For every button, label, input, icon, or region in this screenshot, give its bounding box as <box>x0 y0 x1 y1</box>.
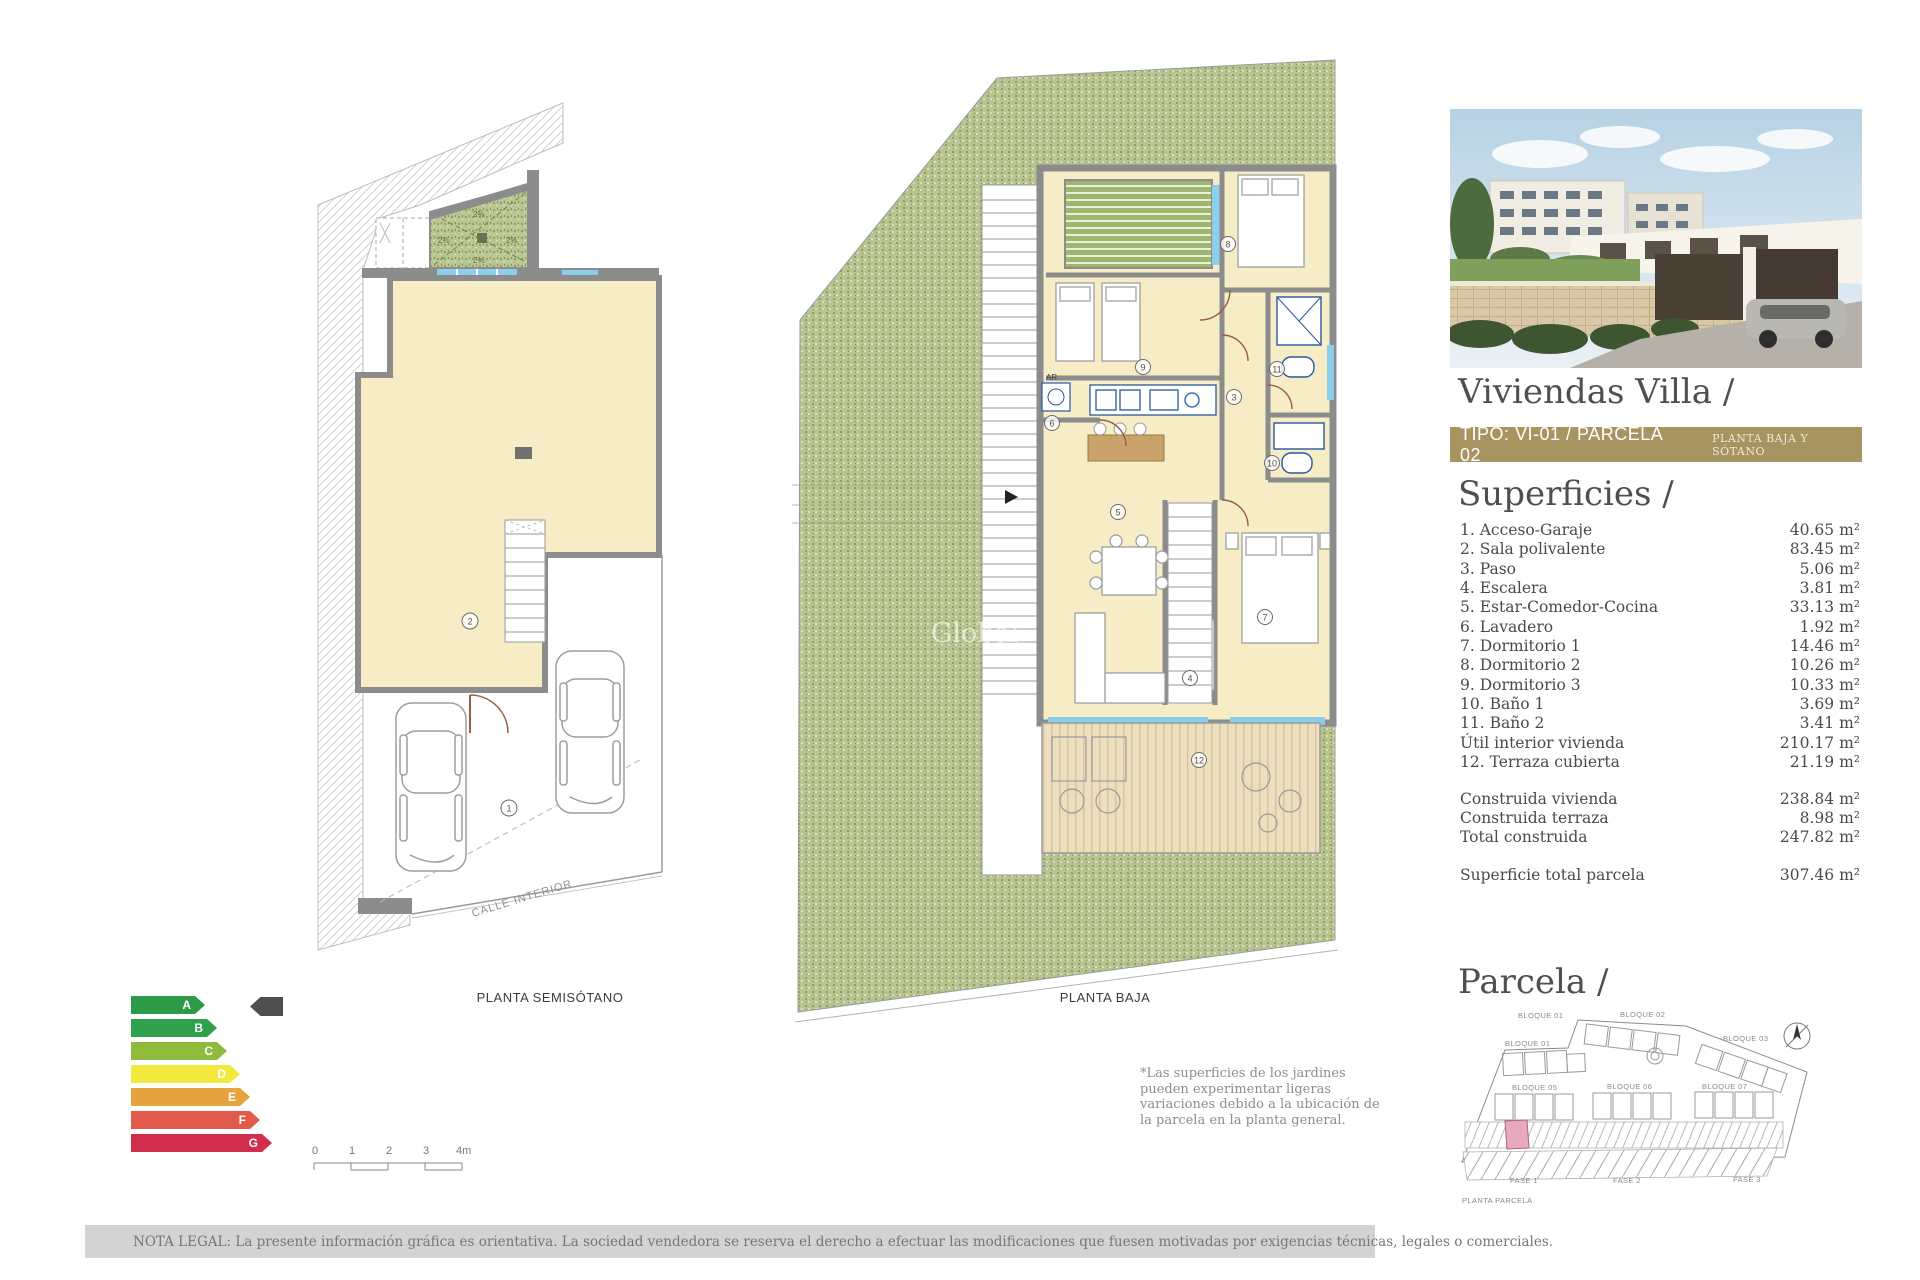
svg-text:4: 4 <box>1187 674 1192 684</box>
type-banner: TIPO: VI-01 / PARCELA 02 PLANTA BAJA Y S… <box>1450 427 1862 462</box>
svg-text:FASE 2: FASE 2 <box>1613 1176 1641 1185</box>
superficies-row: 8. Dormitorio 210.26 m² <box>1460 656 1860 675</box>
light-wells <box>376 218 430 268</box>
superficies-row: 2. Sala polivalente83.45 m² <box>1460 540 1860 559</box>
baja-floorplan: AR 8 9 11 3 6 1 <box>790 45 1360 1030</box>
planter-garden: 2% 2% 2% 2% <box>430 183 538 268</box>
superficies-total-row: Total construida247.82 m² <box>1460 828 1860 847</box>
svg-text:10: 10 <box>1267 459 1277 469</box>
type-banner-type: TIPO: VI-01 / PARCELA 02 <box>1460 424 1684 466</box>
covered-terrace <box>1042 723 1320 853</box>
energy-bar-b: B <box>131 1019 217 1037</box>
svg-text:11: 11 <box>1272 365 1281 375</box>
svg-text:7: 7 <box>1262 613 1267 623</box>
svg-text:BLOQUE 01: BLOQUE 01 <box>1505 1039 1550 1048</box>
superficies-row: 6. Lavadero1.92 m² <box>1460 618 1860 637</box>
page-title: Viviendas Villa / <box>1458 372 1734 412</box>
svg-text:2: 2 <box>467 617 472 627</box>
room-number-1: 1 <box>501 800 517 816</box>
svg-text:12: 12 <box>1194 756 1204 766</box>
watermark: Global <box>900 618 1050 649</box>
interior-stairs <box>505 520 545 642</box>
svg-text:0: 0 <box>312 1145 318 1157</box>
svg-text:3: 3 <box>423 1145 429 1157</box>
exterior-stairs <box>982 185 1042 875</box>
svg-text:9: 9 <box>1140 363 1145 373</box>
superficies-row: Útil interior vivienda210.17 m² <box>1460 734 1860 753</box>
svg-text:FASE 1: FASE 1 <box>1510 1176 1538 1185</box>
kitchen-counter <box>1090 385 1216 415</box>
legal-note: NOTA LEGAL: La presente información gráf… <box>133 1234 1553 1250</box>
slope-label: 2% <box>438 236 450 245</box>
svg-text:6: 6 <box>1049 419 1054 429</box>
compass-icon <box>1784 1023 1810 1049</box>
energy-bar-a: A <box>131 996 205 1014</box>
type-banner-planta: PLANTA BAJA Y SÓTANO <box>1712 432 1862 458</box>
energy-bar-g: G <box>131 1134 272 1152</box>
window-glazing <box>1212 185 1220 265</box>
legal-bar: NOTA LEGAL: La presente información gráf… <box>85 1225 1375 1258</box>
superficies-row: 12. Terraza cubierta21.19 m² <box>1460 753 1860 772</box>
slope-label: 2% <box>473 210 485 219</box>
semisotano-caption: PLANTA SEMISÓTANO <box>455 990 645 1005</box>
svg-text:1: 1 <box>349 1145 355 1157</box>
svg-text:1: 1 <box>506 804 511 814</box>
svg-text:BLOQUE 01: BLOQUE 01 <box>1518 1011 1563 1020</box>
covered-planter <box>1065 180 1212 268</box>
svg-text:4m: 4m <box>456 1145 471 1157</box>
slope-label: 2% <box>506 236 518 245</box>
parcel-total-row: Superficie total parcela307.46 m² <box>1460 866 1860 885</box>
svg-text:FASE 3: FASE 3 <box>1733 1175 1761 1184</box>
semisotano-floorplan: 2% 2% 2% 2% <box>310 95 680 965</box>
energy-bar-c: C <box>131 1042 227 1060</box>
svg-text:8: 8 <box>1225 240 1230 250</box>
slope-label: 2% <box>473 256 485 265</box>
superficies-total-row: Construida vivienda238.84 m² <box>1460 790 1860 809</box>
scale-bar: 0 1 2 3 4m <box>306 1142 476 1176</box>
svg-text:BLOQUE 06: BLOQUE 06 <box>1607 1082 1652 1091</box>
car-icon <box>556 651 624 813</box>
svg-text:5: 5 <box>1115 508 1120 518</box>
energy-bar-f: F <box>131 1111 260 1129</box>
superficies-row: 3. Paso5.06 m² <box>1460 560 1860 579</box>
energy-bar-d: D <box>131 1065 240 1083</box>
house: AR <box>1040 168 1334 725</box>
svg-text:BLOQUE 02: BLOQUE 02 <box>1620 1010 1665 1019</box>
superficies-row: 1. Acceso-Garaje40.65 m² <box>1460 521 1860 540</box>
svg-text:AR: AR <box>1046 373 1057 382</box>
hero-photo <box>1450 109 1862 368</box>
superficies-heading: Superficies / <box>1458 474 1674 514</box>
energy-bar-e: E <box>131 1088 250 1106</box>
door-arc <box>470 695 508 733</box>
window-glazing <box>1327 345 1334 400</box>
garden-variation-note: *Las superficies de los jardines pueden … <box>1140 1066 1395 1128</box>
car-icon <box>396 703 466 871</box>
superficies-row: 7. Dormitorio 114.46 m² <box>1460 637 1860 656</box>
superficies-row: 10. Baño 13.69 m² <box>1460 695 1860 714</box>
bed-icon <box>1238 175 1304 267</box>
energy-pointer-arrow <box>250 997 283 1016</box>
superficies-row: 5. Estar-Comedor-Cocina33.13 m² <box>1460 598 1860 617</box>
baja-caption: PLANTA BAJA <box>1010 990 1200 1005</box>
superficies-row: 11. Baño 23.41 m² <box>1460 714 1860 733</box>
svg-text:BLOQUE 07: BLOQUE 07 <box>1702 1082 1747 1091</box>
bed-icon <box>1226 533 1330 643</box>
brochure-page: 2% 2% 2% 2% <box>0 0 1920 1280</box>
superficies-row: 9. Dormitorio 310.33 m² <box>1460 676 1860 695</box>
svg-text:2: 2 <box>386 1145 392 1157</box>
svg-text:BLOQUE 05: BLOQUE 05 <box>1512 1083 1557 1092</box>
parcela-site-plan: BLOQUE 01 BLOQUE 02 BLOQUE 03 BLOQUE 01 … <box>1455 1008 1820 1213</box>
sala-polivalente: 2 <box>358 278 659 690</box>
highlighted-parcel <box>1505 1120 1529 1149</box>
parcela-heading: Parcela / <box>1458 962 1608 1002</box>
superficies-row: 4. Escalera3.81 m² <box>1460 579 1860 598</box>
superficies-total-row: Construida terraza8.98 m² <box>1460 809 1860 828</box>
svg-text:BLOQUE 03: BLOQUE 03 <box>1723 1034 1768 1043</box>
column <box>515 447 532 459</box>
room-number-2: 2 <box>462 613 478 629</box>
svg-text:PLANTA PARCELA: PLANTA PARCELA <box>1462 1196 1532 1205</box>
svg-text:3: 3 <box>1231 393 1236 403</box>
street-label: CALLE INTERIOR <box>470 878 573 920</box>
